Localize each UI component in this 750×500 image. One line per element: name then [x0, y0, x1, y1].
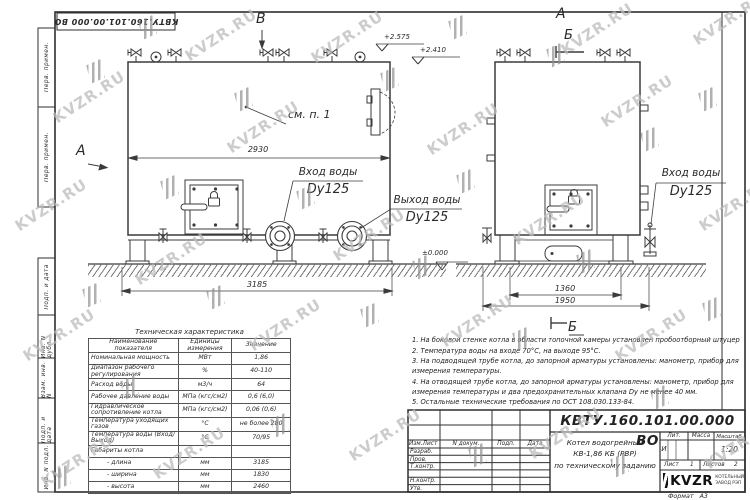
col-izm-list: Изм.Лист	[409, 441, 437, 447]
format-note: Формат А3	[668, 493, 708, 500]
table-cell	[232, 445, 291, 457]
boiler-side-view	[88, 30, 468, 296]
corner-valve-icon	[482, 228, 492, 244]
col-podp: Подп.	[493, 441, 519, 447]
side-door	[181, 180, 243, 234]
table-row: - длинамм3185	[89, 457, 291, 469]
stamp-rotated-text: КВТУ.160.101.00.000 ВО	[54, 17, 178, 26]
table-cell	[178, 445, 232, 457]
table-cell: 40-110	[232, 365, 291, 379]
table-cell: %	[178, 365, 232, 379]
lifting-lug-icon	[151, 52, 161, 62]
padlock-icon	[569, 190, 580, 205]
note-item: 2. Температура воды на входе 70°С, на вы…	[412, 347, 744, 357]
table-row: Номинальная мощностьМВт1,86	[89, 353, 291, 365]
valve-icon	[517, 49, 530, 62]
elevation-2575: +2.575	[384, 33, 410, 41]
table-header-units: Единицы измерения	[178, 339, 232, 353]
table-cell: 1830	[232, 469, 291, 481]
drain-valve-icon	[159, 229, 167, 243]
row-prov: Пров.	[410, 457, 427, 463]
note-item: 1. На боковой стенке котла в области топ…	[412, 336, 744, 346]
table-cell: 64	[232, 379, 291, 391]
frame-field-podp-data-1: Подп. и дата	[38, 258, 55, 315]
lit-label: Лит.	[660, 433, 688, 439]
table-cell: Температура воды (Вход/Выход)	[89, 431, 179, 445]
table-cell: Габариты котла	[89, 445, 179, 457]
inlet-left-label: Вход воды	[293, 166, 363, 178]
see-note-ref: см. п. 1	[288, 108, 331, 121]
scale-label: Масштаб	[713, 434, 745, 440]
product-title: Котел водогрейный КВ-1,86 КБ (РВР) по те…	[552, 437, 658, 471]
col-n-dokum: N докум.	[443, 441, 489, 447]
table-row: - высотамм2460	[89, 482, 291, 494]
table-row: Гидравлическое сопротивление котлаМПа (к…	[89, 403, 291, 417]
col-data: Дата	[521, 441, 549, 447]
section-b-bottom-label: Б	[568, 320, 577, 335]
table-cell: МПа (кгс/см2)	[178, 403, 232, 417]
table-cell: °С	[178, 417, 232, 431]
valve-icon	[497, 49, 510, 62]
product-title-line2: КВ-1,86 КБ (РВР)	[552, 448, 658, 459]
door-handle-icon	[181, 204, 207, 210]
valve-icon	[324, 49, 337, 62]
dim-3185: 3185	[225, 280, 289, 289]
elevation-2410: +2.410	[420, 46, 446, 54]
table-row: Рабочее давление водыМПа (кгс/см2)0,6 (6…	[89, 391, 291, 403]
table-cell: - ширина	[89, 469, 179, 481]
inlet-valve-icon	[644, 223, 656, 256]
table-cell: 3185	[232, 457, 291, 469]
front-door	[545, 185, 597, 235]
valve-icon	[276, 49, 289, 62]
table-cell: 70/95	[232, 431, 291, 445]
inlet-left-size: Dy125	[293, 182, 363, 197]
table-cell: - длина	[89, 457, 179, 469]
table-cell: Гидравлическое сопротивление котла	[89, 403, 179, 417]
frame-field-inv-dubl: Инв. N дубл.	[38, 315, 55, 358]
kvzr-logo-text: KVZR	[670, 473, 713, 489]
inlet-right-size: Dy125	[656, 184, 726, 199]
valve-icon	[597, 49, 610, 62]
table-cell: м3/ч	[178, 379, 232, 391]
table-cell: 1,86	[232, 353, 291, 365]
table-row: Температура воды (Вход/Выход)°С70/95	[89, 431, 291, 445]
drain-valve-icon	[319, 229, 327, 243]
technical-notes: 1. На боковой стенке котла в области топ…	[412, 336, 744, 409]
sheets-value: 2	[734, 462, 738, 468]
table-row: Диапазон рабочего регулирования%40-110	[89, 365, 291, 379]
table-cell: не более 280	[232, 417, 291, 431]
table-cell: мм	[178, 457, 232, 469]
inlet-right-label: Вход воды	[656, 167, 726, 179]
dim-1950: 1950	[535, 296, 595, 305]
note-item: 3. На подводящей трубе котла, до запорно…	[412, 357, 744, 376]
view-a-label-left: А	[76, 143, 86, 159]
table-cell: 0,06 (0,6)	[232, 403, 291, 417]
format-label: Формат	[668, 493, 694, 500]
row-nkontr: Н.контр.	[410, 478, 436, 484]
table-row: Габариты котла	[89, 445, 291, 457]
table-row: - ширинамм1830	[89, 469, 291, 481]
table-title: Техническая характеристика	[88, 328, 291, 336]
table-cell: Расход воды	[89, 379, 179, 391]
stamp-rotated-top: КВТУ.160.101.00.000 ВО	[57, 13, 175, 30]
frame-field-perv-primen-1: Перв. примен.	[38, 28, 55, 107]
note-item: 4. На отводящей трубе котла, до запорной…	[412, 378, 744, 397]
frame-field-vzam-inv: Взам. инв. N	[38, 358, 55, 398]
table-cell: МПа (кгс/см2)	[178, 391, 232, 403]
table-cell: Номинальная мощность	[89, 353, 179, 365]
water-outlet-flange-icon	[338, 222, 367, 251]
sheet-label: Лист	[664, 462, 679, 468]
ground-hatch	[456, 264, 706, 277]
outlet-left-label: Выход воды	[391, 194, 463, 206]
padlock-icon	[209, 192, 220, 207]
sheet-value: 1	[690, 462, 694, 468]
row-razrab: Разраб.	[410, 449, 433, 455]
mass-label: Масса	[688, 433, 714, 439]
scale-value: 1:20	[714, 445, 745, 454]
valve-icon	[617, 49, 630, 62]
valve-icon	[168, 49, 181, 62]
elevation-0000: ±0.000	[422, 249, 448, 257]
table-cell: Температура уходящих газов	[89, 417, 179, 431]
kvzr-logo-subtext: КОТЕЛЬНЫЙ ЗАВОД РЭП	[715, 475, 744, 486]
door-handle-icon	[547, 206, 569, 212]
dim-2930: 2930	[230, 145, 286, 154]
dim-1360: 1360	[535, 284, 595, 293]
frame-field-perv-primen-2: Перв. примен.	[38, 107, 55, 207]
drain-valve-icon	[243, 229, 251, 243]
valve-icon	[128, 49, 141, 62]
drawing-sheet: КВТУ.160.101.00.000 ВО Перв. примен. Пер…	[0, 0, 750, 500]
table-header-name: Наименование показателя	[89, 339, 179, 353]
frame-field-inv-podl: Инв. N подл.	[38, 443, 55, 492]
table-cell: Рабочее давление воды	[89, 391, 179, 403]
kvzr-logo: KVZR КОТЕЛЬНЫЙ ЗАВОД РЭП	[663, 471, 744, 490]
product-title-line3: по техническому заданию	[552, 460, 658, 471]
table-cell: мм	[178, 482, 232, 494]
table-cell: Диапазон рабочего регулирования	[89, 365, 179, 379]
view-a-label-right: А	[556, 6, 566, 22]
table-cell: 2460	[232, 482, 291, 494]
tech-characteristics-table: Техническая характеристика Наименование …	[88, 328, 291, 494]
section-b-top-label: Б	[564, 28, 573, 43]
view-b-label: В	[256, 11, 266, 27]
row-tkontr: Т.контр.	[410, 464, 435, 470]
doc-number: КВТУ.160.101.00.000 ВО	[550, 411, 745, 431]
table-row: Расход водым3/ч64	[89, 379, 291, 391]
outlet-left-size: Dy125	[391, 210, 463, 225]
sheets-label: Листов	[703, 462, 725, 468]
ground-hatch	[88, 264, 446, 277]
frame-field-podp-data-2: Подп. и дата	[38, 398, 55, 443]
note-item: 5. Остальные технические требования по О…	[412, 398, 744, 408]
table-cell: 0,6 (6,0)	[232, 391, 291, 403]
table-header-value: Значение	[232, 339, 291, 353]
table-cell: °С	[178, 431, 232, 445]
water-inlet-flange-icon	[266, 222, 295, 251]
table-cell: МВт	[178, 353, 232, 365]
row-utv: Утв.	[410, 486, 422, 492]
table-cell: мм	[178, 469, 232, 481]
lifting-lug-icon	[355, 52, 365, 62]
table-row: Температура уходящих газов°Сне более 280	[89, 417, 291, 431]
valve-icon	[260, 49, 273, 62]
product-title-line1: Котел водогрейный	[552, 437, 658, 448]
lit-value: И	[660, 445, 668, 453]
format-value: А3	[700, 493, 708, 500]
table-cell: - высота	[89, 482, 179, 494]
kvzr-logo-mark-icon	[663, 473, 668, 488]
